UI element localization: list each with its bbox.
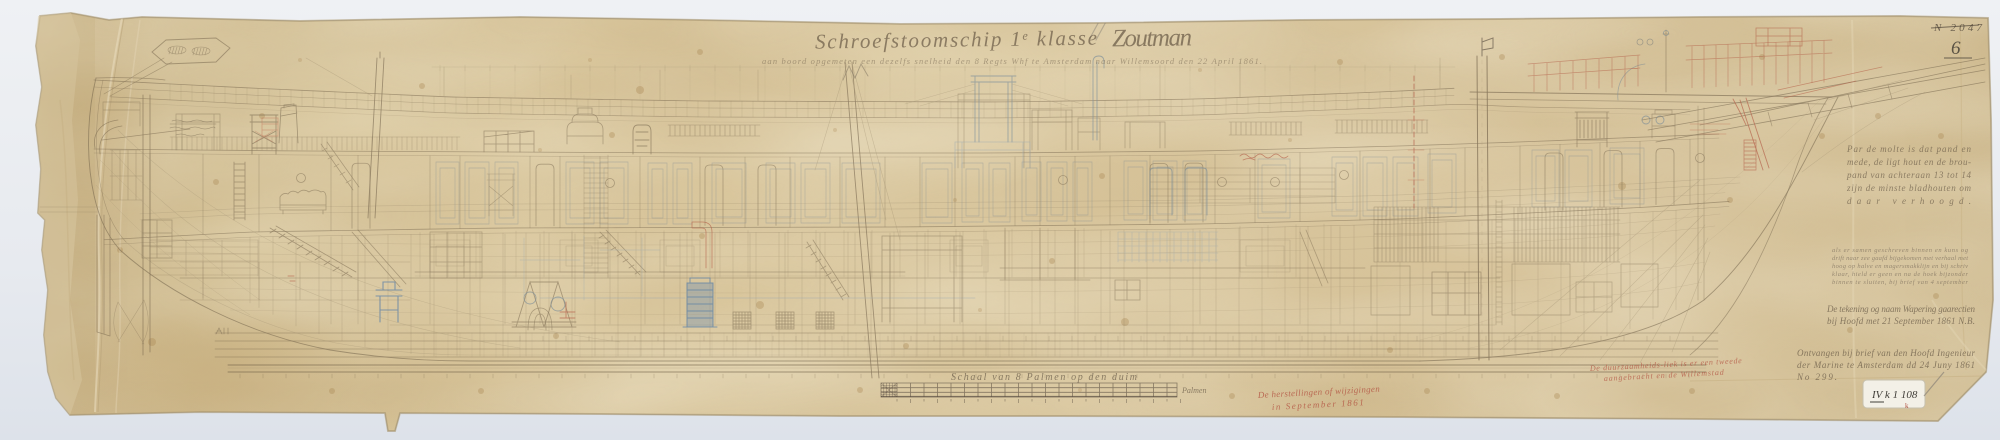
svg-text:binnen te sluiten, bij brief v: binnen te sluiten, bij brief van 4 septe… (1832, 279, 1968, 286)
svg-text:der Marine te Amsterdam dd 24: der Marine te Amsterdam dd 24 Juny 1861 (1797, 360, 1975, 370)
svg-text:zijn de minste bladhouten om: zijn de minste bladhouten om (1846, 183, 1972, 193)
svg-text:hoog op halve en magersmakklij: hoog op halve en magersmakklijn en bij s… (1832, 263, 1968, 270)
svg-text:k: k (1905, 402, 1909, 410)
svg-text:6: 6 (1951, 38, 1961, 59)
svg-text:Zoutman: Zoutman (1112, 24, 1192, 52)
svg-text:Par de molte is dat pand en: Par de molte is dat pand en (1846, 144, 1972, 154)
svg-text:mede, de ligt hout en de brou-: mede, de ligt hout en de brou- (1847, 157, 1971, 167)
svg-text:De tekening og naam Wapering g: De tekening og naam Wapering gaarectien (1826, 304, 1976, 314)
svg-text:Schroefstoomschip 1e klasse: Schroefstoomschip 1e klasse (815, 26, 1097, 54)
svg-text:Palmen: Palmen (1181, 386, 1206, 395)
svg-text:klaar, hield er geen en na de: klaar, hield er geen en na de hoek bijzo… (1832, 271, 1968, 278)
svg-text:Ontvangen bij brief van den Ho: Ontvangen bij brief van den Hoofd Ingeni… (1797, 348, 1975, 358)
svg-text:aan boord opgemeten een dezelf: aan boord opgemeten een dezelfs snelheid… (762, 56, 1262, 66)
svg-text:bij Hoofd met 21 September 186: bij Hoofd met 21 September 1861 N.B. (1827, 316, 1975, 326)
svg-text:No 299.: No 299. (1796, 372, 1837, 382)
svg-text:drift naar zee gaafd bijgekome: drift naar zee gaafd bijgekomen met verh… (1832, 255, 1968, 262)
svg-text:IV k 1 108: IV k 1 108 (1871, 389, 1918, 401)
svg-text:pand van achteraan 13 tot 14: pand van achteraan 13 tot 14 (1846, 170, 1972, 180)
svg-text:als er samen geschreven binnen: als er samen geschreven binnen en kuns o… (1832, 247, 1969, 254)
